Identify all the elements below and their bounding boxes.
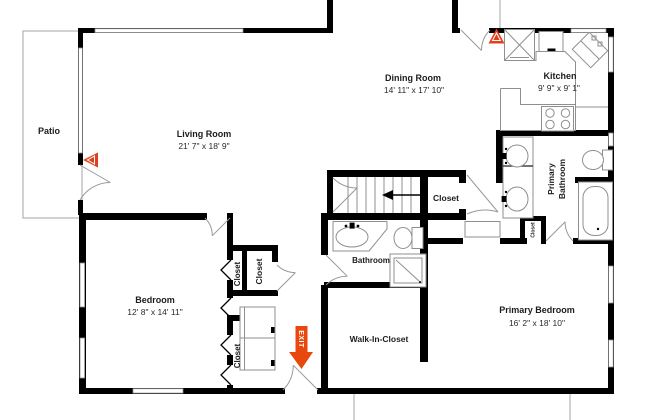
bathroom-door [326, 255, 347, 285]
dishwasher-icon [505, 30, 535, 61]
dining-room-dims: 14' 11" x 17' 10" [384, 85, 444, 95]
kitchen-sink-icon [539, 32, 563, 53]
bathtub-icon [579, 182, 613, 240]
primary-bathroom-label-line1: Primary [546, 163, 556, 195]
primary-bedroom-dims: 16' 2" x 18' 10" [509, 318, 565, 328]
bedroom-closet-large-label: Closet [254, 258, 264, 284]
bedroom-label: Bedroom [135, 295, 175, 305]
shower-icon [390, 254, 426, 287]
patio-outline [23, 31, 82, 218]
stairs-door [333, 178, 357, 212]
living-room-dims: 21' 7" x 18' 9" [178, 141, 229, 151]
dining-door [461, 30, 490, 51]
primary-bedroom-label: Primary Bedroom [499, 305, 575, 315]
floorplan-svg: EXIT Patio Living Room 21' 7" x 18' 9" D… [0, 0, 650, 420]
front-door [283, 365, 318, 390]
bathroom-fixtures [333, 222, 426, 288]
kitchen-dims: 9' 9" x 9' 1" [538, 83, 580, 93]
toilet-icon [394, 228, 423, 249]
hall-closet-label: Closet [433, 193, 459, 203]
bedroom-closet-lower-label: Closet [233, 343, 242, 368]
exit-label: EXIT [297, 330, 304, 348]
hallway-door [467, 175, 498, 214]
bedroom-door [205, 218, 230, 236]
exit-arrow-icon: EXIT [289, 326, 313, 369]
primary-bathroom-door [546, 222, 573, 241]
bedroom-closet-narrow-label: Closet [233, 261, 242, 286]
fridge-icon [572, 32, 607, 67]
bath-closet-label: Closet [531, 222, 537, 238]
primary-bathroom-label-line2: Bathroom [557, 158, 567, 199]
dining-room-label: Dining Room [385, 73, 441, 83]
hall-closet-door [277, 265, 295, 291]
staircase [348, 177, 424, 213]
floorplan-image: EXIT Patio Living Room 21' 7" x 18' 9" D… [0, 0, 650, 420]
patio-door [80, 165, 110, 200]
sink-vanity [333, 222, 387, 252]
stairs-direction-arrow [382, 190, 424, 200]
dresser [465, 222, 500, 238]
camera-markers [83, 29, 505, 168]
kitchen-label: Kitchen [543, 71, 576, 81]
patio-label: Patio [38, 126, 61, 136]
toilet-icon [583, 150, 613, 170]
camera-marker-icon [83, 153, 98, 168]
bedroom-dims: 12' 8" x 14' 11" [127, 307, 182, 317]
stove-icon [542, 107, 574, 132]
wardrobe-shelves [240, 307, 275, 370]
bathroom-label: Bathroom [352, 256, 390, 265]
living-room-label: Living Room [177, 129, 232, 139]
double-vanity [502, 137, 533, 218]
walk-in-closet-label: Walk-In-Closet [350, 334, 409, 344]
